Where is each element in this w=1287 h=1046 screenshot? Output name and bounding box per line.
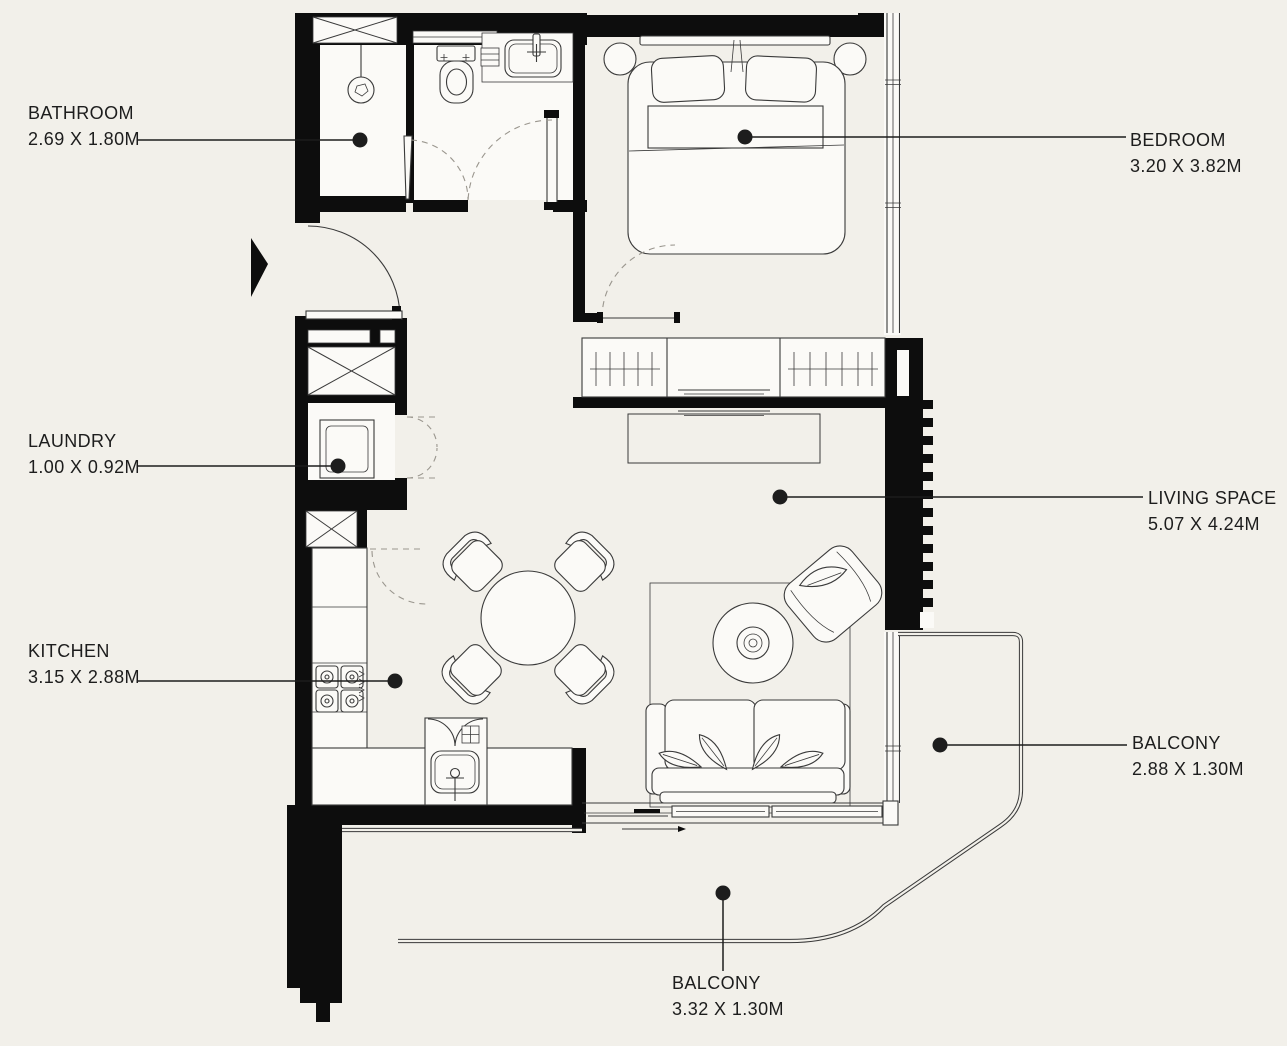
room-name: BALCONY bbox=[672, 970, 784, 996]
entry-door bbox=[306, 226, 402, 324]
bedroom-window bbox=[884, 13, 901, 335]
laundry-bifold-doors bbox=[407, 417, 437, 478]
room-dims: 3.15 X 2.88M bbox=[28, 664, 140, 690]
room-name: LAUNDRY bbox=[28, 428, 140, 454]
bed bbox=[604, 36, 866, 254]
shaft-box-middle bbox=[308, 347, 395, 395]
label-living-space: LIVING SPACE 5.07 X 4.24M bbox=[1148, 485, 1277, 537]
room-name: BALCONY bbox=[1132, 730, 1244, 756]
label-bathroom: BATHROOM 2.69 X 1.80M bbox=[28, 100, 140, 152]
wardrobe bbox=[582, 338, 885, 397]
washing-machine bbox=[320, 420, 374, 478]
room-name: BATHROOM bbox=[28, 100, 140, 126]
bedroom-door bbox=[597, 245, 680, 323]
shaft-box-lower bbox=[306, 511, 357, 547]
tv-console bbox=[628, 411, 820, 463]
room-dims: 3.32 X 1.30M bbox=[672, 996, 784, 1022]
shaft-box-top bbox=[313, 17, 397, 43]
label-laundry: LAUNDRY 1.00 X 0.92M bbox=[28, 428, 140, 480]
dining-set bbox=[436, 526, 620, 710]
room-name: KITCHEN bbox=[28, 638, 140, 664]
label-balcony-bottom: BALCONY 3.32 X 1.30M bbox=[672, 970, 784, 1022]
room-name: LIVING SPACE bbox=[1148, 485, 1277, 511]
living-window bbox=[884, 632, 901, 803]
living-set bbox=[646, 539, 888, 807]
floor-plan: BATHROOM 2.69 X 1.80M BEDROOM 3.20 X 3.8… bbox=[0, 0, 1287, 1046]
wc-sink bbox=[481, 33, 573, 82]
room-name: BEDROOM bbox=[1130, 127, 1242, 153]
label-balcony-right: BALCONY 2.88 X 1.30M bbox=[1132, 730, 1244, 782]
sliding-door bbox=[582, 801, 898, 832]
armchair bbox=[778, 539, 889, 648]
sofa bbox=[646, 700, 850, 803]
label-kitchen: KITCHEN 3.15 X 2.88M bbox=[28, 638, 140, 690]
label-bedroom: BEDROOM 3.20 X 3.82M bbox=[1130, 127, 1242, 179]
room-dims: 5.07 X 4.24M bbox=[1148, 511, 1277, 537]
entry-arrow bbox=[251, 238, 268, 297]
coffee-table bbox=[713, 603, 793, 683]
floor-areas bbox=[308, 43, 573, 480]
room-dims: 3.20 X 3.82M bbox=[1130, 153, 1242, 179]
room-dims: 2.69 X 1.80M bbox=[28, 126, 140, 152]
kitchen-sink bbox=[425, 718, 487, 805]
floor-plan-drawing bbox=[0, 0, 1287, 1046]
room-dims: 1.00 X 0.92M bbox=[28, 454, 140, 480]
laundry-shelves bbox=[308, 330, 395, 343]
room-dims: 2.88 X 1.30M bbox=[1132, 756, 1244, 782]
toilet bbox=[437, 46, 475, 103]
